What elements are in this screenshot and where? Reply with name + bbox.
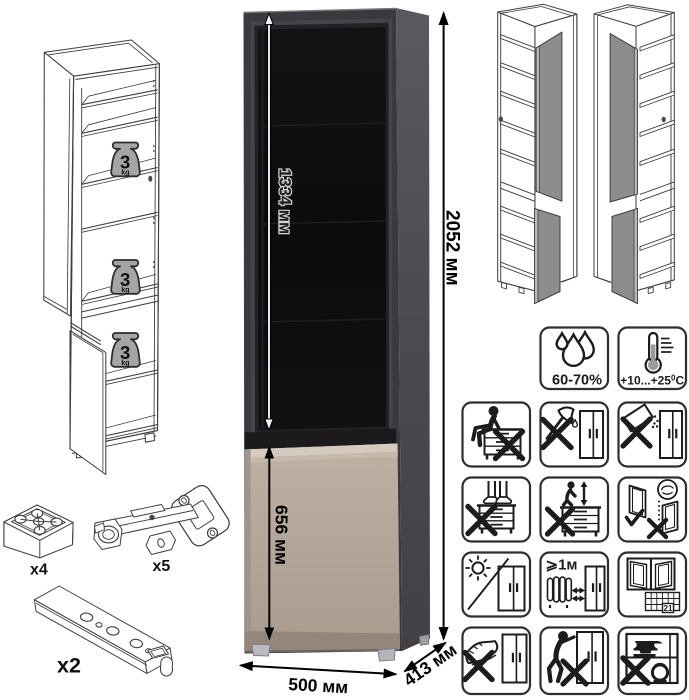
svg-text:500 мм: 500 мм xyxy=(288,674,349,697)
svg-text:⩾1м: ⩾1м xyxy=(546,557,578,574)
svg-text:x4: x4 xyxy=(30,562,48,579)
svg-text:x2: x2 xyxy=(57,654,81,678)
svg-text:60-70%: 60-70% xyxy=(552,373,602,389)
svg-text:x5: x5 xyxy=(153,558,171,575)
svg-text:21: 21 xyxy=(664,604,673,613)
svg-text:+10...+250C: +10...+250C xyxy=(620,374,684,388)
svg-text:kg: kg xyxy=(121,287,129,294)
svg-text:kg: kg xyxy=(121,170,129,177)
svg-text:656 мм: 656 мм xyxy=(272,505,292,565)
svg-text:2052 мм: 2052 мм xyxy=(441,210,462,286)
svg-text:1334 мм: 1334 мм xyxy=(275,169,293,235)
svg-text:kg: kg xyxy=(121,360,129,367)
